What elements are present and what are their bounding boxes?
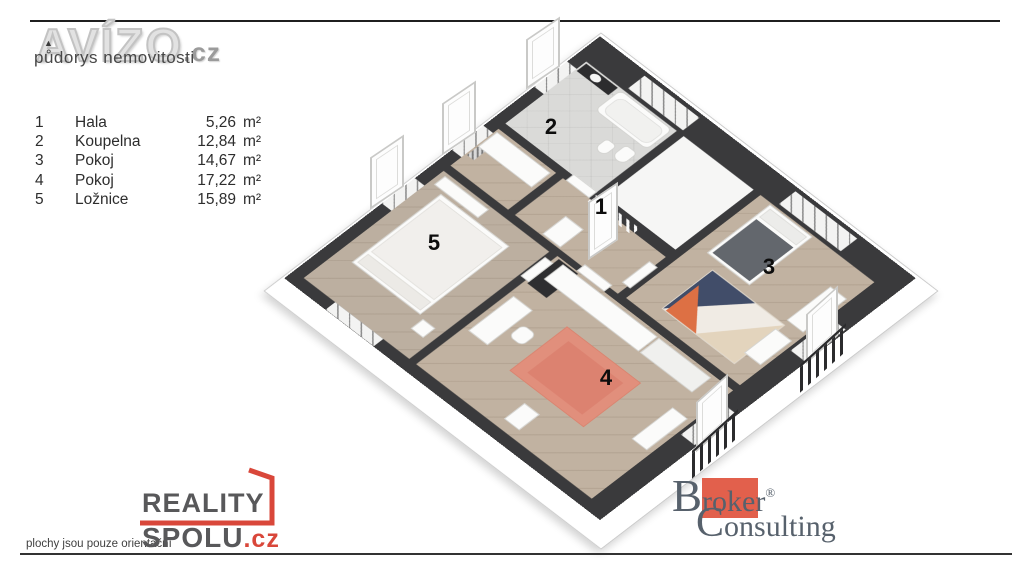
room-name: Ložnice <box>75 191 182 209</box>
bottom-rule <box>20 553 1012 555</box>
room-area: 5,26 <box>182 114 236 132</box>
avizo-logo: AVÍZO.cz ▲ půdorys nemovitosti <box>36 22 221 68</box>
room-name: Hala <box>75 114 182 132</box>
area-unit: m² <box>236 172 273 190</box>
legend-row: 2 Koupelna 12,84 m² <box>35 132 273 151</box>
room-legend: 1 Hala 5,26 m² 2 Koupelna 12,84 m² 3 Pok… <box>35 113 273 210</box>
area-unit: m² <box>236 152 273 170</box>
room-label-5: 5 <box>428 230 440 256</box>
window-glass <box>448 91 470 146</box>
room-number: 5 <box>35 191 75 209</box>
window-glass <box>532 27 554 80</box>
room-label-1: 1 <box>595 194 607 220</box>
reality-house-icon <box>138 456 308 556</box>
room-area: 14,67 <box>182 152 236 170</box>
room-label-3: 3 <box>763 254 775 280</box>
room-number: 4 <box>35 172 75 190</box>
legend-row: 5 Ložnice 15,89 m² <box>35 191 273 210</box>
room-name: Pokoj <box>75 152 182 170</box>
room-number: 2 <box>35 133 75 151</box>
area-unit: m² <box>236 133 273 151</box>
room-name: Koupelna <box>75 133 182 151</box>
room-name: Pokoj <box>75 172 182 190</box>
room-number: 3 <box>35 152 75 170</box>
consulting-initial: C <box>696 500 724 546</box>
room-area: 12,84 <box>182 133 236 151</box>
area-unit: m² <box>236 191 273 209</box>
window-glass <box>376 145 398 200</box>
consulting-word: Consulting <box>696 507 892 542</box>
avizo-triangle-icon: ▲ <box>44 38 53 48</box>
room-area: 15,89 <box>182 191 236 209</box>
room-label-4: 4 <box>600 365 612 391</box>
reality-spolu-logo: REALITY SPOLU.cz <box>142 490 332 552</box>
room-label-2: 2 <box>545 114 557 140</box>
room-number: 1 <box>35 114 75 132</box>
consulting-end: onsulting <box>724 510 836 543</box>
room-area: 17,22 <box>182 172 236 190</box>
legend-row: 3 Pokoj 14,67 m² <box>35 152 273 171</box>
area-unit: m² <box>236 114 273 132</box>
broker-consulting-logo: Broker® Consulting <box>672 478 892 542</box>
legend-row: 4 Pokoj 17,22 m² <box>35 171 273 190</box>
page: AVÍZO.cz ▲ půdorys nemovitosti 1 Hala 5,… <box>0 0 1024 576</box>
legend-row: 1 Hala 5,26 m² <box>35 113 273 132</box>
floor-plan <box>284 36 915 519</box>
avizo-subtitle: půdorys nemovitosti <box>34 48 195 68</box>
registered-mark: ® <box>765 485 775 500</box>
